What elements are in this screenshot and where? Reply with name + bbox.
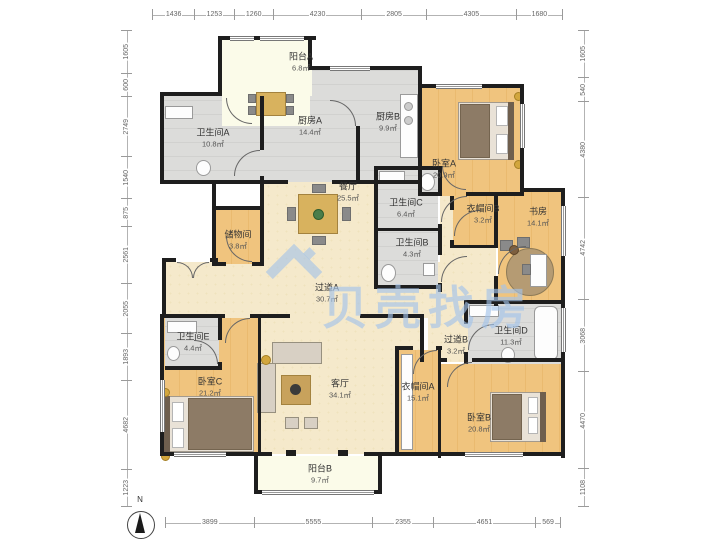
dimension-segment: 540	[578, 77, 589, 101]
dimension-segment: 4230	[273, 9, 361, 20]
floorplan-canvas: 1436125312604230280543051680 38995555235…	[0, 0, 720, 540]
wall	[212, 262, 226, 266]
dimension-segment: 2561	[121, 226, 132, 283]
plant-icon	[313, 209, 324, 220]
dimension-segment: 1253	[194, 9, 233, 20]
room-label-closet-b: 衣帽间B3.2㎡	[466, 203, 499, 224]
wall	[218, 314, 222, 340]
stove-burner-icon	[404, 102, 413, 111]
ottoman-furniture	[285, 417, 299, 429]
room-label-bath-e: 卫生间E4.4㎡	[176, 331, 209, 352]
room-label-bedroom-b: 卧室B20.8㎡	[467, 412, 491, 433]
dimension-top: 1436125312604230280543051680	[152, 9, 563, 20]
wall	[374, 228, 438, 231]
room-label-bath-c: 卫生间C6.4㎡	[389, 197, 423, 218]
blanket-furniture	[492, 394, 522, 440]
wall	[212, 206, 264, 210]
window	[561, 308, 566, 352]
wall	[250, 314, 290, 318]
wall	[438, 224, 442, 255]
pillow-furniture	[496, 134, 508, 154]
wall	[252, 262, 264, 266]
dimension-segment: 3899	[165, 517, 254, 528]
wall	[260, 96, 264, 150]
wall	[395, 350, 399, 454]
compass-needle-icon	[135, 513, 145, 533]
room-label-living: 客厅34.1㎡	[329, 378, 351, 399]
dimension-segment: 1680	[516, 9, 562, 20]
room-label-study: 书房14.1㎡	[527, 206, 549, 227]
wall	[420, 192, 442, 196]
room-label-balcony-a: 阳台A6.8㎡	[289, 51, 313, 72]
wall	[338, 450, 348, 456]
wall	[160, 92, 164, 184]
dimension-right: 160554043804742306844701108	[578, 30, 589, 507]
wall	[260, 176, 264, 266]
chair-furniture	[286, 94, 294, 103]
headboard-furniture	[540, 392, 546, 442]
compass-north-label: N	[127, 495, 153, 504]
room-label-bedroom-a: 卧室A20.9㎡	[432, 158, 456, 179]
decor-icon	[290, 384, 301, 395]
wall	[160, 314, 225, 318]
window	[520, 104, 525, 148]
dimension-segment: 1436	[152, 9, 194, 20]
window	[465, 452, 523, 457]
wall	[258, 314, 261, 456]
chair-furniture	[286, 106, 294, 115]
wall	[364, 452, 442, 456]
chair-furniture	[342, 207, 351, 221]
dimension-segment: 2749	[121, 96, 132, 156]
dimension-segment: 600	[121, 73, 132, 97]
window	[436, 84, 482, 89]
dimension-segment: 1108	[578, 468, 589, 506]
dimension-segment: 4470	[578, 371, 589, 468]
dimension-segment: 4305	[426, 9, 516, 20]
wall	[165, 366, 222, 370]
dimension-segment: 569	[535, 517, 560, 528]
side-table-icon	[261, 355, 271, 365]
dimension-segment: 2805	[361, 9, 426, 20]
room-label-balcony-b: 阳台B9.7㎡	[308, 463, 332, 484]
wall	[472, 358, 564, 362]
wall	[441, 358, 447, 362]
blanket-furniture	[188, 398, 252, 450]
dimension-segment: 3068	[578, 299, 589, 372]
window	[330, 66, 370, 71]
window	[174, 452, 226, 457]
window	[561, 206, 566, 256]
chair-furniture	[287, 207, 296, 221]
bathtub-furniture	[534, 306, 558, 360]
pillow-furniture	[172, 402, 184, 422]
wall	[450, 245, 498, 248]
room-label-bedroom-c: 卧室C21.2㎡	[198, 376, 223, 397]
pillow-furniture	[528, 417, 538, 434]
wall	[162, 258, 166, 318]
dimension-segment: 1893	[121, 333, 132, 380]
sofa-furniture	[272, 342, 322, 364]
dimension-segment: 4682	[121, 380, 132, 469]
window	[260, 36, 304, 41]
blanket-furniture	[460, 104, 490, 158]
watermark-text: 贝壳找房	[322, 272, 534, 338]
wall	[356, 126, 360, 182]
wall	[262, 180, 288, 184]
dimension-left: 16056002749154087525612055189346821223	[121, 30, 132, 507]
room-label-bath-a: 卫生间A10.8㎡	[196, 127, 229, 148]
room-label-kitchen-a: 厨房A14.4㎡	[298, 115, 322, 136]
wall	[218, 36, 222, 96]
room-label-closet-a: 衣帽间A15.1㎡	[401, 381, 434, 402]
window	[160, 380, 165, 432]
dimension-segment: 2055	[121, 283, 132, 333]
wall	[254, 452, 258, 494]
dimension-segment: 4651	[433, 517, 535, 528]
chair-furniture	[312, 236, 326, 245]
chair-furniture	[312, 184, 326, 193]
wall	[160, 92, 222, 96]
wall	[374, 166, 378, 288]
wall	[438, 350, 441, 458]
wall	[218, 88, 222, 96]
window	[262, 490, 374, 495]
basin-furniture	[165, 106, 193, 119]
dimension-segment: 4380	[578, 101, 589, 197]
dimension-segment: 1605	[578, 30, 589, 77]
dimension-segment: 875	[121, 198, 132, 226]
dimension-segment: 1260	[234, 9, 273, 20]
dimension-segment: 1605	[121, 30, 132, 73]
wall	[520, 188, 565, 192]
wall	[374, 166, 438, 170]
wall	[378, 452, 382, 494]
dimension-segment: 1540	[121, 156, 132, 198]
dimension-segment: 5555	[254, 517, 372, 528]
window	[230, 36, 254, 41]
pillow-furniture	[172, 428, 184, 448]
toilet-furniture	[196, 160, 211, 176]
dimension-segment: 2355	[372, 517, 433, 528]
room-label-bath-b: 卫生间B4.3㎡	[395, 237, 428, 258]
pillow-furniture	[496, 106, 508, 126]
room-label-dining: 餐厅25.5㎡	[337, 181, 359, 202]
dimension-segment: 4742	[578, 197, 589, 299]
room-label-kitchen-b: 厨房B9.9㎡	[376, 111, 400, 132]
ottoman-furniture	[304, 417, 318, 429]
wall	[286, 450, 296, 456]
pillow-furniture	[528, 397, 538, 414]
stove-burner-icon	[404, 116, 413, 125]
wall	[212, 184, 216, 262]
headboard-furniture	[508, 102, 514, 160]
room-label-storage: 储物间3.8㎡	[224, 229, 251, 250]
dimension-bottom: 3899555523554651569	[165, 517, 561, 528]
